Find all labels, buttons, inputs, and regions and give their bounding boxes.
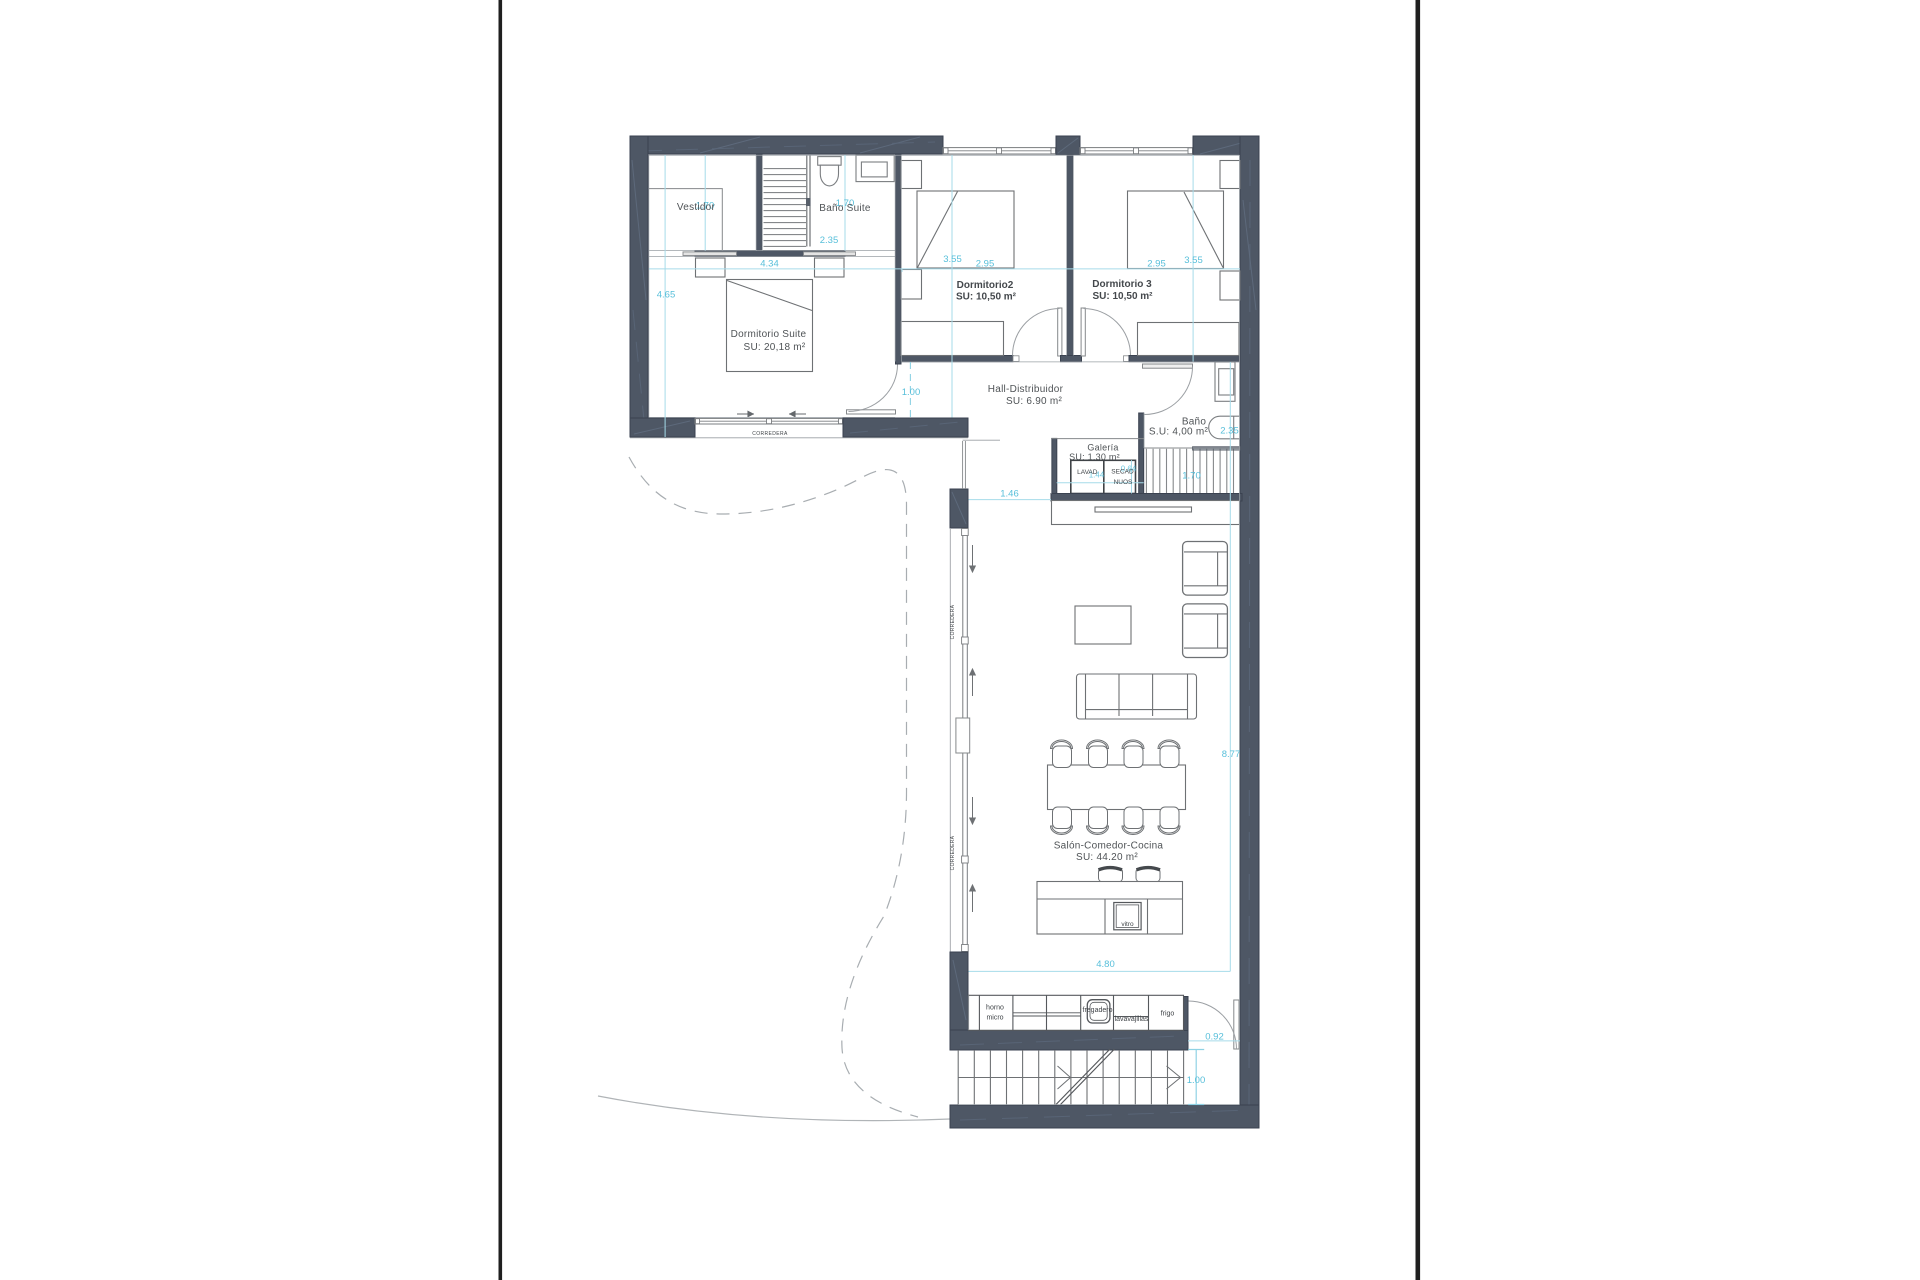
- svg-text:2.35: 2.35: [820, 235, 839, 246]
- svg-text:SU: 20,18 m²: SU: 20,18 m²: [744, 342, 806, 353]
- svg-text:Dormitorio 3: Dormitorio 3: [1092, 279, 1152, 290]
- svg-text:CORREDERA: CORREDERA: [950, 835, 956, 870]
- svg-text:Salón-Comedor-Cocina: Salón-Comedor-Cocina: [1054, 841, 1164, 852]
- svg-text:Galería: Galería: [1087, 443, 1118, 453]
- svg-text:2.35: 2.35: [1220, 426, 1239, 437]
- svg-text:0.92: 0.92: [1205, 1032, 1224, 1043]
- svg-text:frigo: frigo: [1161, 1011, 1175, 1018]
- svg-text:S.U: 4,00 m²: S.U: 4,00 m²: [1149, 427, 1209, 438]
- svg-text:2.95: 2.95: [1147, 259, 1166, 270]
- svg-text:1.70: 1.70: [1182, 471, 1201, 482]
- svg-text:SU: 10,50 m²: SU: 10,50 m²: [956, 292, 1017, 303]
- svg-text:CORREDERA: CORREDERA: [752, 431, 788, 437]
- svg-text:Baño Suite: Baño Suite: [819, 203, 871, 214]
- svg-text:1.00: 1.00: [1187, 1075, 1206, 1086]
- svg-text:1.00: 1.00: [902, 387, 921, 398]
- svg-text:4.65: 4.65: [657, 290, 676, 301]
- svg-text:SU: 1.30 m²: SU: 1.30 m²: [1069, 452, 1120, 462]
- svg-text:Vestidor: Vestidor: [677, 202, 716, 213]
- svg-text:Dormitorio Suite: Dormitorio Suite: [731, 329, 807, 340]
- svg-text:micro: micro: [986, 1015, 1003, 1022]
- svg-text:Dormitorio2: Dormitorio2: [957, 280, 1014, 291]
- svg-text:vitro: vitro: [1121, 921, 1134, 928]
- svg-text:3.55: 3.55: [943, 254, 962, 265]
- svg-text:horno: horno: [986, 1005, 1004, 1012]
- svg-text:SU: 6.90 m²: SU: 6.90 m²: [1006, 396, 1063, 407]
- svg-text:lavavajillas: lavavajillas: [1115, 1016, 1149, 1023]
- svg-text:SU: 44.20 m²: SU: 44.20 m²: [1076, 852, 1138, 863]
- svg-text:3.55: 3.55: [1184, 255, 1203, 266]
- svg-text:SECAD: SECAD: [1111, 469, 1134, 476]
- svg-text:4.80: 4.80: [1096, 959, 1115, 970]
- svg-text:CORREDERA: CORREDERA: [950, 604, 956, 639]
- svg-text:fregadero: fregadero: [1083, 1007, 1113, 1014]
- svg-text:NUOS: NUOS: [1114, 479, 1133, 486]
- svg-text:LAVAD: LAVAD: [1077, 469, 1098, 476]
- svg-text:SU: 10,50 m²: SU: 10,50 m²: [1092, 291, 1153, 302]
- svg-text:1.46: 1.46: [1000, 489, 1019, 500]
- svg-text:8.77: 8.77: [1222, 749, 1241, 760]
- svg-text:4.34: 4.34: [760, 259, 779, 270]
- svg-text:Hall-Distribuidor: Hall-Distribuidor: [988, 384, 1064, 395]
- svg-text:2.95: 2.95: [976, 259, 995, 270]
